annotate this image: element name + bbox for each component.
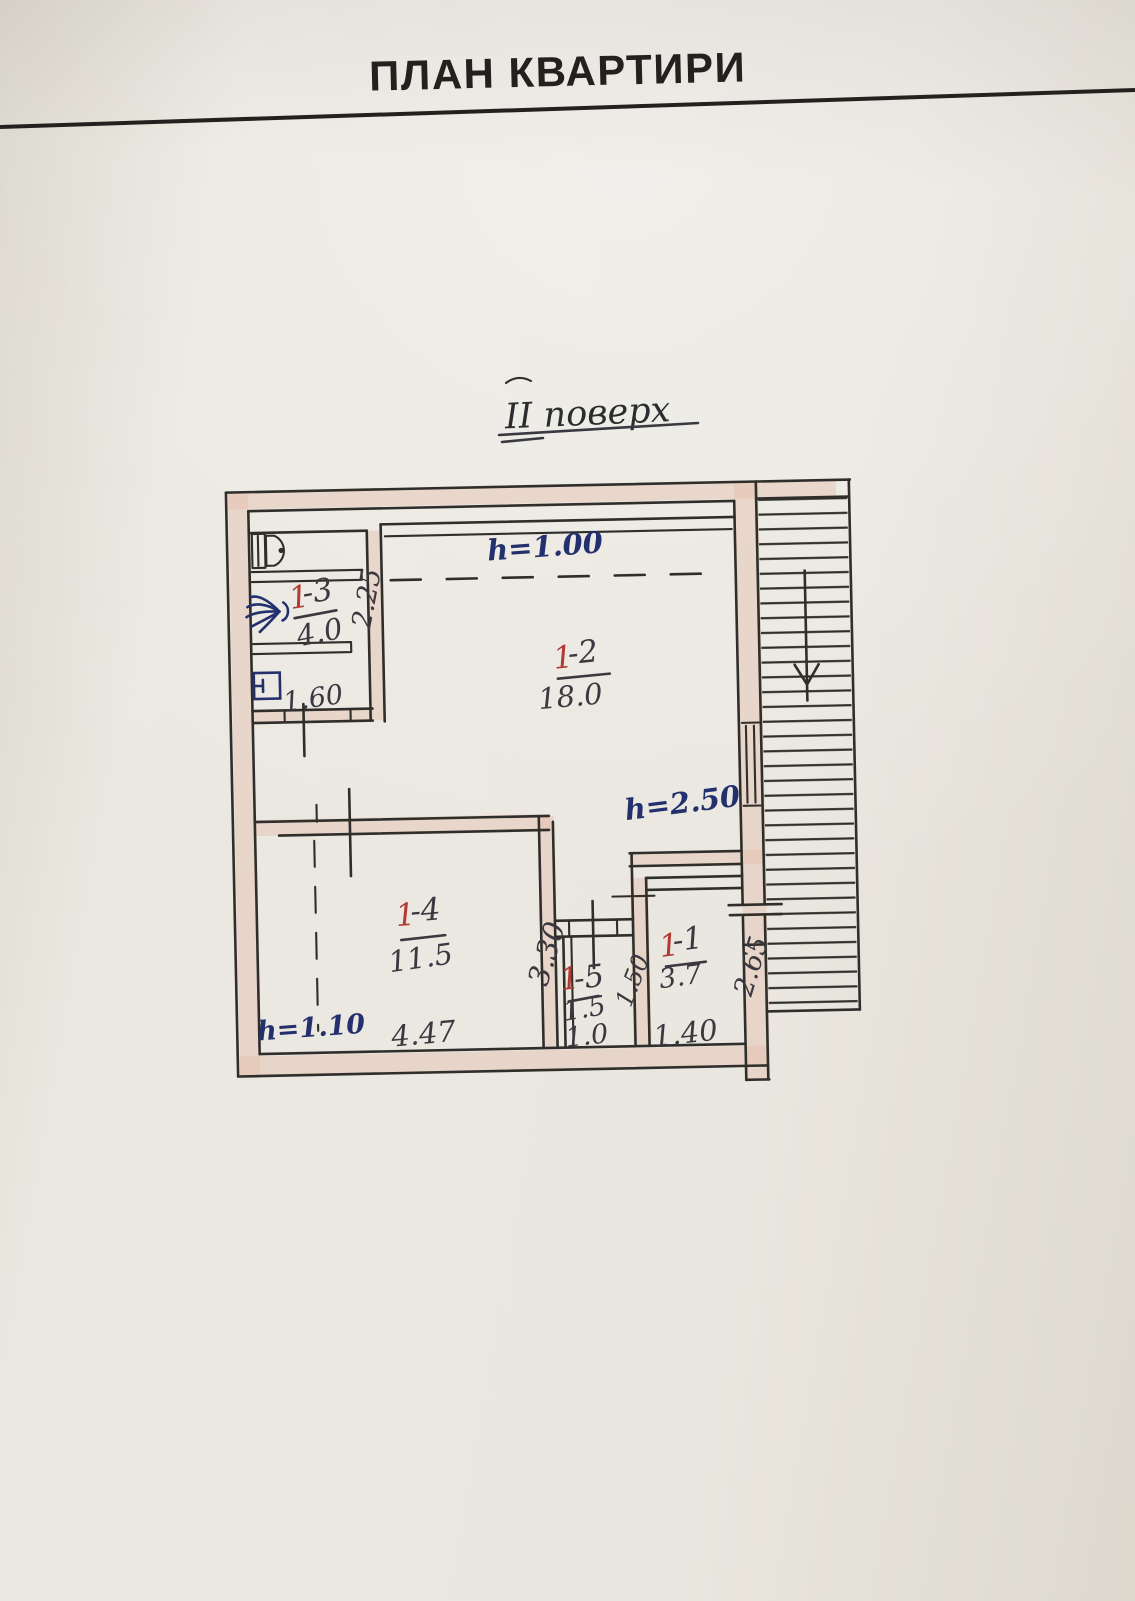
room-1-2-number-suffix: -2 [566,633,600,672]
floor-plan-sheet: ПЛАН КВАРТИРИ ІІ поверх [0,0,1135,1601]
room-1-4-area: 11.5 [386,936,455,979]
room-1-4-number-suffix: -4 [409,891,442,930]
room-1-1-width-dim: 1.40 [652,1013,720,1054]
room-1-1-label: 1 -1 3.7 [656,920,707,996]
room-1-4-label: 1 -4 11.5 [385,891,455,979]
room-1-3-label: 1 -3 4.0 [286,571,345,654]
room-1-2-dashed-line [391,573,726,580]
subtitle-accent-mark [506,378,531,383]
toilet-icon [252,533,284,568]
room-1-4-width-dim: 4.47 [389,1014,458,1054]
room-1-2-height-note: h=1.00 [486,525,604,567]
room-1-5-label: 1 -5 1.5 [558,958,608,1028]
room-1-2-label: 1 -2 18.0 [536,633,611,716]
room-1-3-number-suffix: -3 [300,571,336,611]
page-title: ПЛАН КВАРТИРИ [369,43,747,99]
stair-treads [758,492,858,1008]
floor-plan-drawing: 1 -3 4.0 2.25 1.60 h=1.00 1 -2 18.0 h=2.… [226,480,862,1091]
washbasin-icon [254,673,281,700]
header-rule [0,90,1135,127]
sink-icon [246,596,288,632]
room-1-4-height-note: h=1.10 [256,1009,366,1048]
room-1-2-area: 18.0 [537,676,604,716]
room-1-5-width-dim: 1.0 [564,1018,610,1053]
room-1-4-door-swing-icon [349,789,351,876]
staircase [756,480,860,1012]
floor-subtitle: ІІ поверх [499,378,698,442]
room-1-1-number-suffix: -1 [671,920,705,960]
room-1-1-area: 3.7 [657,958,705,995]
subtitle-underline-2 [502,438,543,442]
hall-height-note: h=2.50 [623,779,742,827]
